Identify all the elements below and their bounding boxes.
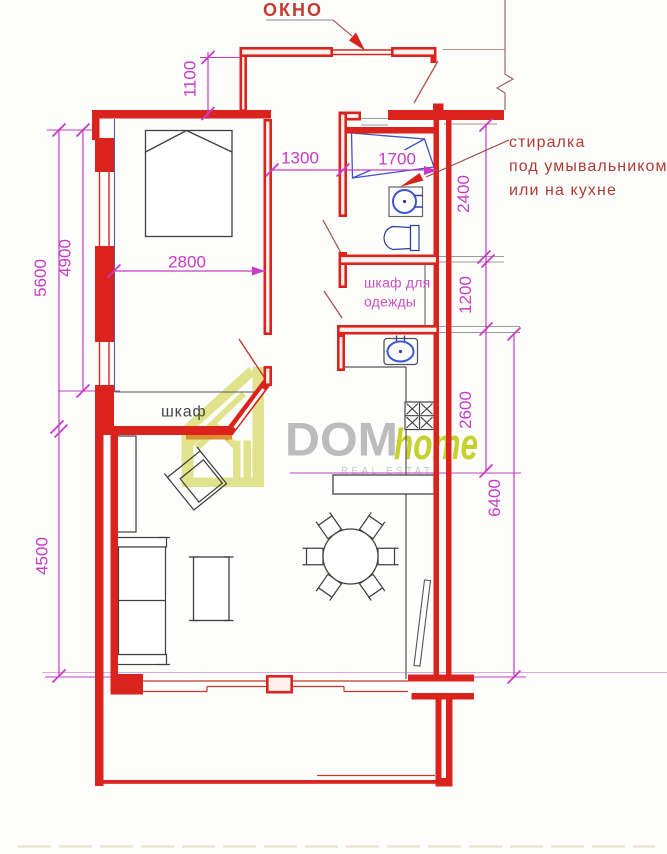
svg-text:шкаф: шкаф: [161, 404, 206, 421]
svg-text:под умывальником: под умывальником: [509, 158, 667, 175]
svg-text:1200: 1200: [456, 276, 475, 314]
svg-text:шкаф для: шкаф для: [364, 275, 430, 291]
svg-text:2600: 2600: [456, 391, 475, 429]
svg-text:1700: 1700: [378, 150, 416, 169]
svg-text:4500: 4500: [33, 537, 52, 575]
svg-text:стиралка: стиралка: [509, 134, 585, 151]
svg-text:DOM: DOM: [285, 413, 398, 466]
svg-text:или на кухне: или на кухне: [509, 182, 617, 199]
svg-text:2400: 2400: [454, 175, 473, 213]
svg-text:1300: 1300: [281, 149, 319, 168]
svg-text:6400: 6400: [485, 479, 504, 517]
svg-text:ОКНО: ОКНО: [263, 0, 323, 20]
svg-text:одежды: одежды: [364, 294, 416, 310]
svg-text:2800: 2800: [168, 253, 206, 272]
svg-text:4900: 4900: [56, 239, 75, 277]
svg-text:1100: 1100: [181, 61, 200, 98]
svg-text:5600: 5600: [31, 259, 50, 297]
